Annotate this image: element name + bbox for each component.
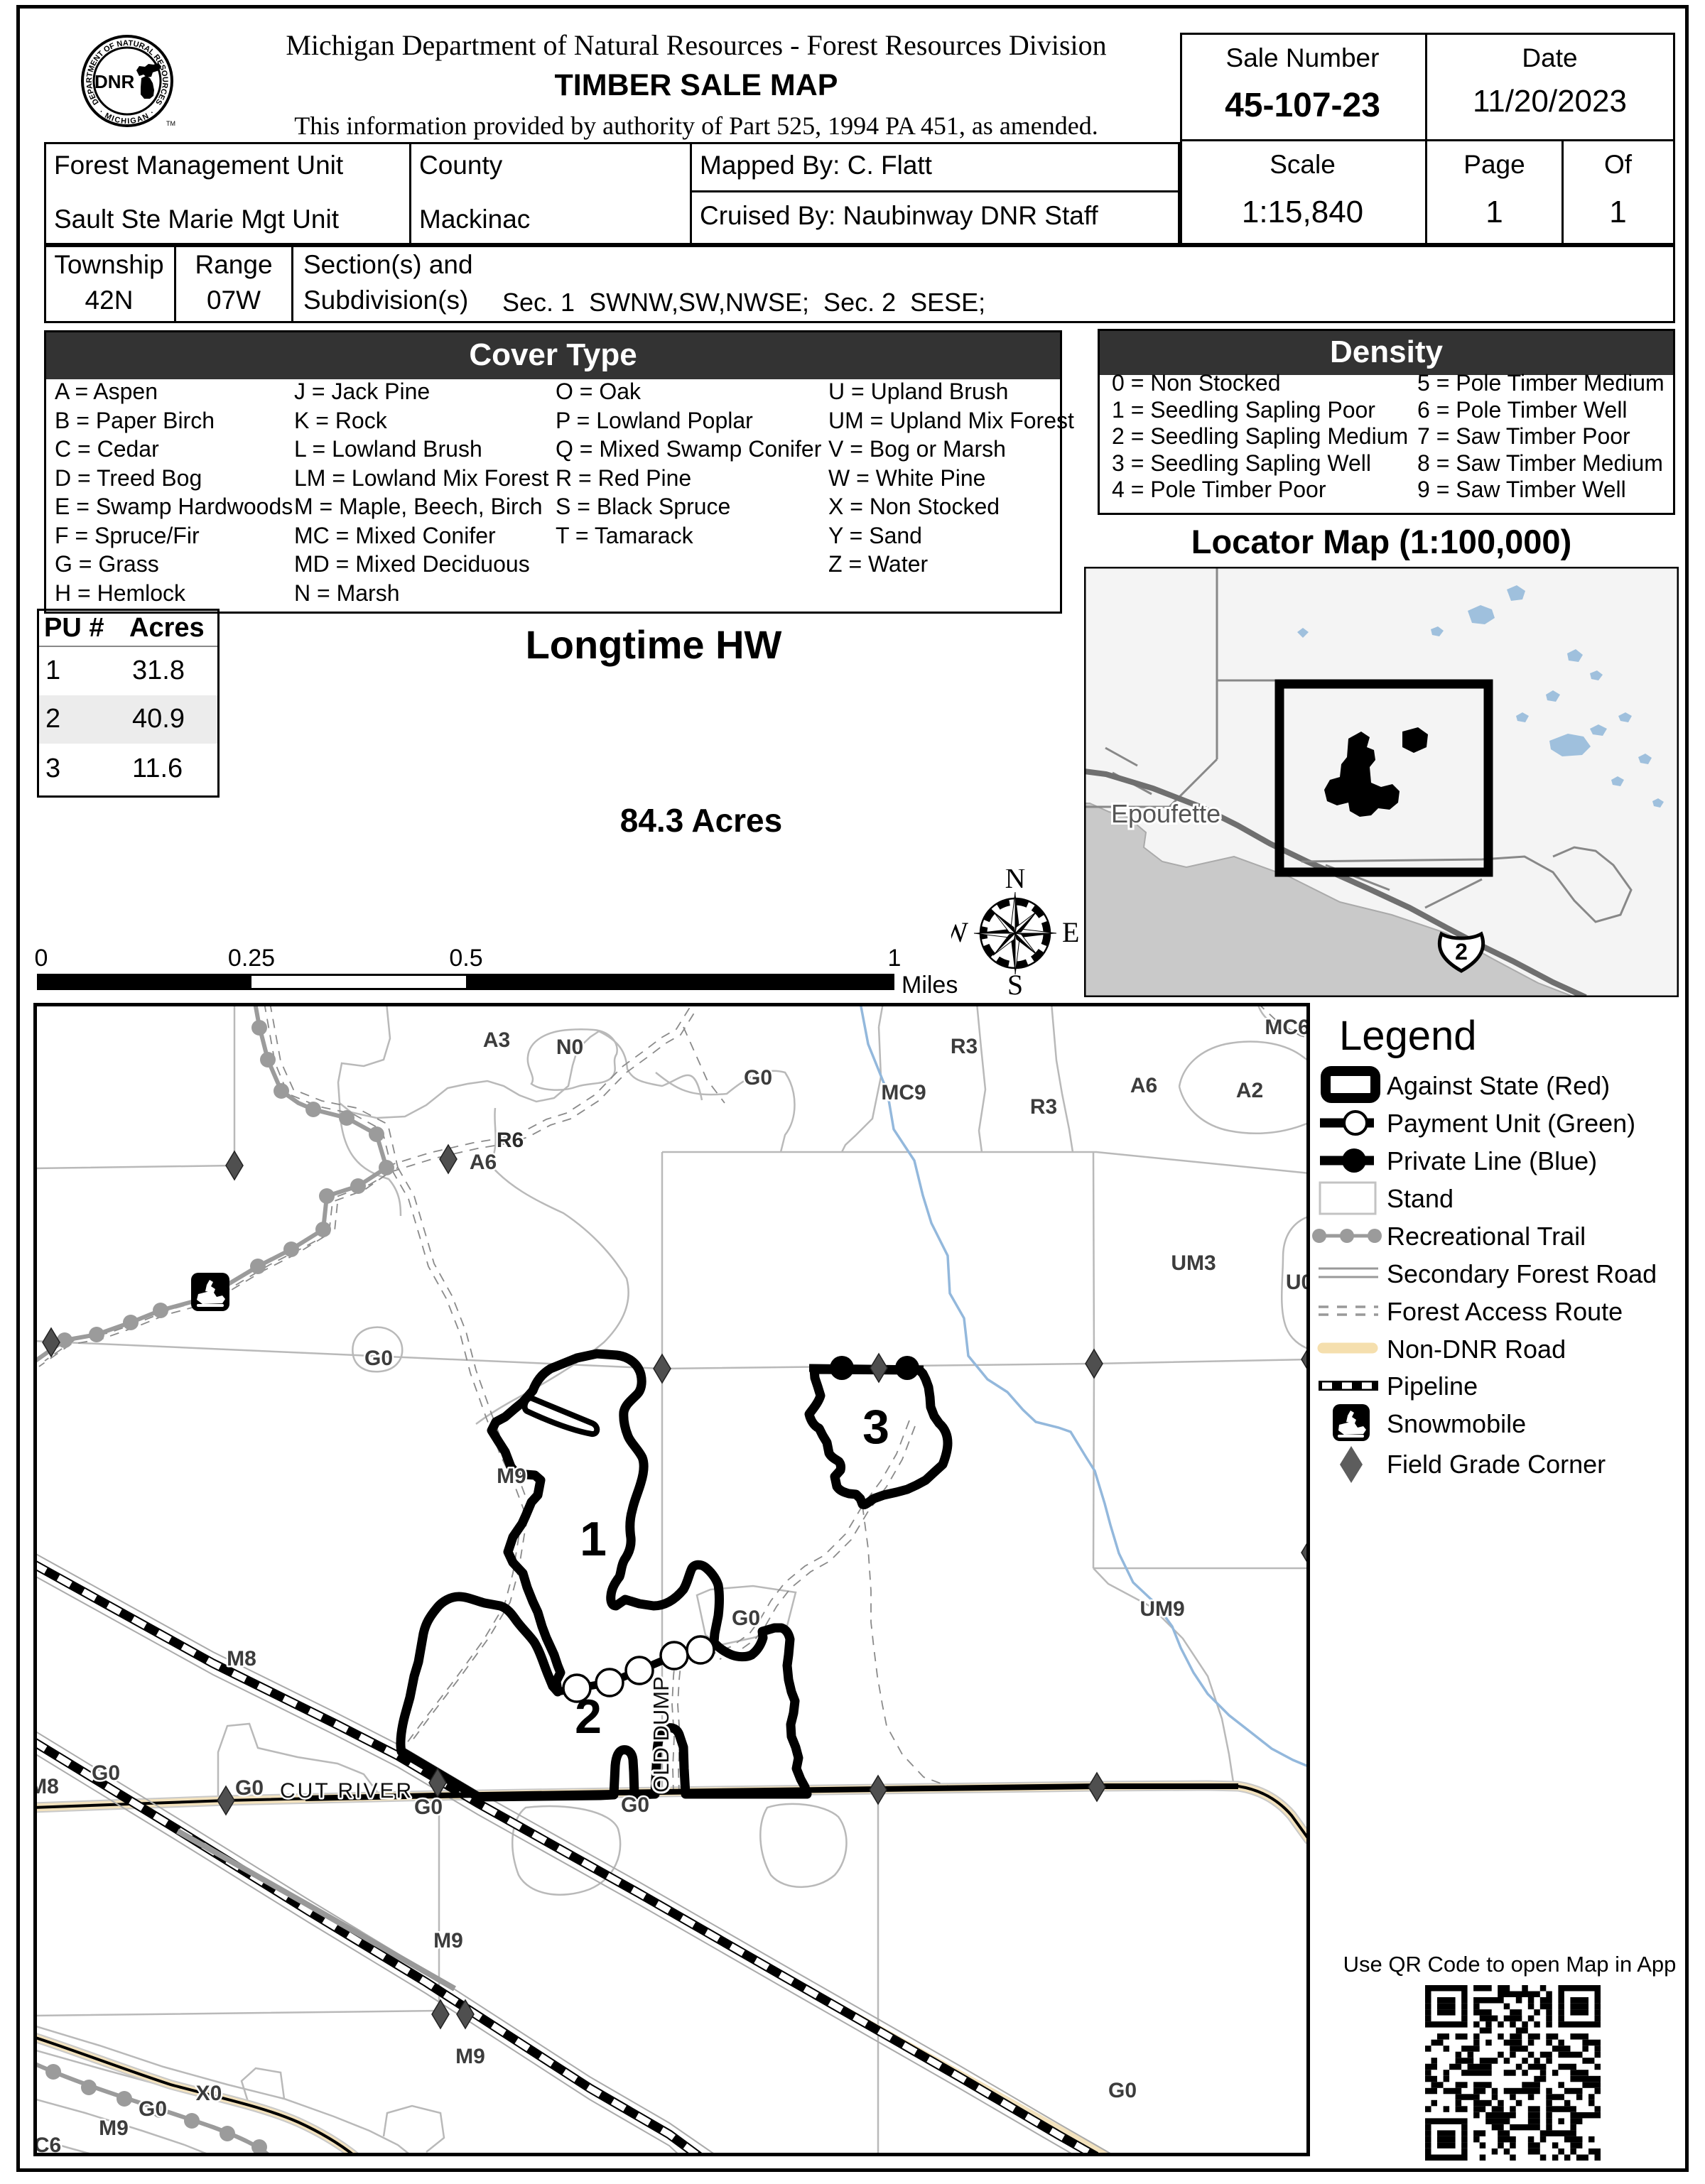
svg-text:A2: A2: [1236, 1079, 1263, 1102]
svg-text:Field Grade Corner: Field Grade Corner: [1387, 1450, 1606, 1479]
svg-text:MC9: MC9: [881, 1081, 926, 1104]
svg-text:R3: R3: [1030, 1095, 1057, 1119]
svg-text:Epoufette: Epoufette: [1111, 799, 1220, 828]
svg-text:R3: R3: [951, 1035, 978, 1058]
svg-text:UM9: UM9: [1140, 1597, 1184, 1621]
svg-text:M9: M9: [433, 1929, 463, 1952]
svg-text:0: 0: [35, 945, 48, 972]
svg-text:N: N: [1005, 869, 1026, 894]
svg-text:S: S: [1007, 969, 1023, 997]
svg-text:Non-DNR Road: Non-DNR Road: [1387, 1335, 1566, 1364]
svg-text:Snowmobile: Snowmobile: [1387, 1409, 1526, 1438]
svg-text:CUT RIVER: CUT RIVER: [280, 1779, 413, 1803]
svg-text:TM: TM: [166, 120, 175, 127]
svg-text:E: E: [1062, 916, 1079, 948]
svg-text:M9: M9: [497, 1465, 526, 1488]
svg-text:Payment Unit (Green): Payment Unit (Green): [1387, 1109, 1635, 1138]
svg-text:G0: G0: [139, 2097, 167, 2121]
svg-text:A6: A6: [1130, 1074, 1157, 1097]
svg-text:Forest Access Route: Forest Access Route: [1387, 1297, 1623, 1326]
svg-text:G0: G0: [414, 1795, 443, 1819]
svg-text:X0: X0: [196, 2082, 222, 2105]
svg-text:MC6: MC6: [1265, 1016, 1309, 1039]
svg-text:A3: A3: [483, 1028, 510, 1052]
svg-text:G0: G0: [235, 1776, 264, 1800]
svg-text:Pipeline: Pipeline: [1387, 1371, 1478, 1401]
svg-text:Stand: Stand: [1387, 1184, 1454, 1213]
svg-text:G0: G0: [1108, 2079, 1137, 2102]
svg-text:G0: G0: [92, 1761, 120, 1785]
svg-text:1: 1: [888, 945, 902, 972]
svg-text:Miles: Miles: [902, 972, 958, 999]
svg-text:G0: G0: [621, 1793, 649, 1817]
svg-text:DNR: DNR: [94, 71, 135, 92]
svg-text:U0: U0: [1286, 1271, 1310, 1294]
svg-text:N0: N0: [556, 1036, 583, 1059]
svg-text:UM3: UM3: [1171, 1251, 1216, 1275]
svg-text:0.25: 0.25: [228, 945, 275, 972]
svg-text:0.5: 0.5: [449, 945, 482, 972]
svg-text:M9: M9: [455, 2045, 485, 2068]
svg-text:G0: G0: [732, 1607, 760, 1630]
svg-text:2: 2: [1455, 939, 1468, 965]
svg-text:Recreational Trail: Recreational Trail: [1387, 1222, 1586, 1251]
svg-text:W: W: [951, 916, 968, 948]
svg-text:3: 3: [862, 1400, 889, 1454]
svg-text:R6: R6: [497, 1129, 524, 1152]
svg-text:M8: M8: [33, 1775, 59, 1798]
svg-text:Secondary Forest Road: Secondary Forest Road: [1387, 1259, 1657, 1288]
svg-text:1: 1: [580, 1512, 607, 1566]
svg-text:M9: M9: [99, 2117, 129, 2140]
svg-text:G0: G0: [744, 1066, 772, 1090]
svg-text:G0: G0: [364, 1347, 393, 1370]
svg-text:M8: M8: [227, 1647, 256, 1670]
svg-text:A6: A6: [470, 1151, 497, 1174]
svg-text:OLD DUMP: OLD DUMP: [649, 1676, 673, 1793]
svg-text:2: 2: [575, 1690, 602, 1744]
svg-text:Against State (Red): Against State (Red): [1387, 1071, 1610, 1100]
svg-text:Private Line (Blue): Private Line (Blue): [1387, 1146, 1597, 1175]
